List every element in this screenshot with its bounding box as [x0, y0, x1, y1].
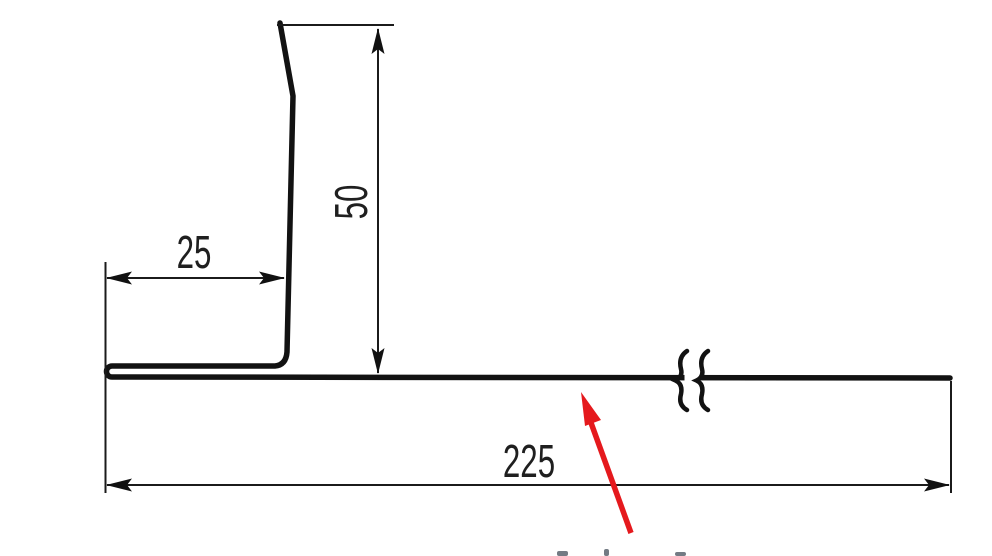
cropped-caption-fragments [557, 549, 686, 556]
cropped-letter-fragment [557, 551, 568, 556]
pointer-arrowhead-icon [581, 392, 601, 426]
pointer-arrow-shaft [590, 420, 631, 533]
dim-label-50: 50 [326, 185, 377, 220]
profile-outline [107, 23, 951, 378]
break-squiggle-right-icon [697, 351, 709, 410]
dim-label-25: 25 [177, 227, 212, 278]
dim-label-225: 225 [503, 436, 555, 487]
technical-drawing-canvas: 25 50 225 [0, 0, 992, 556]
cropped-letter-fragment [604, 549, 609, 556]
flashing-profile-diagram: 25 50 225 [0, 0, 992, 556]
cropped-letter-fragment [675, 552, 686, 556]
